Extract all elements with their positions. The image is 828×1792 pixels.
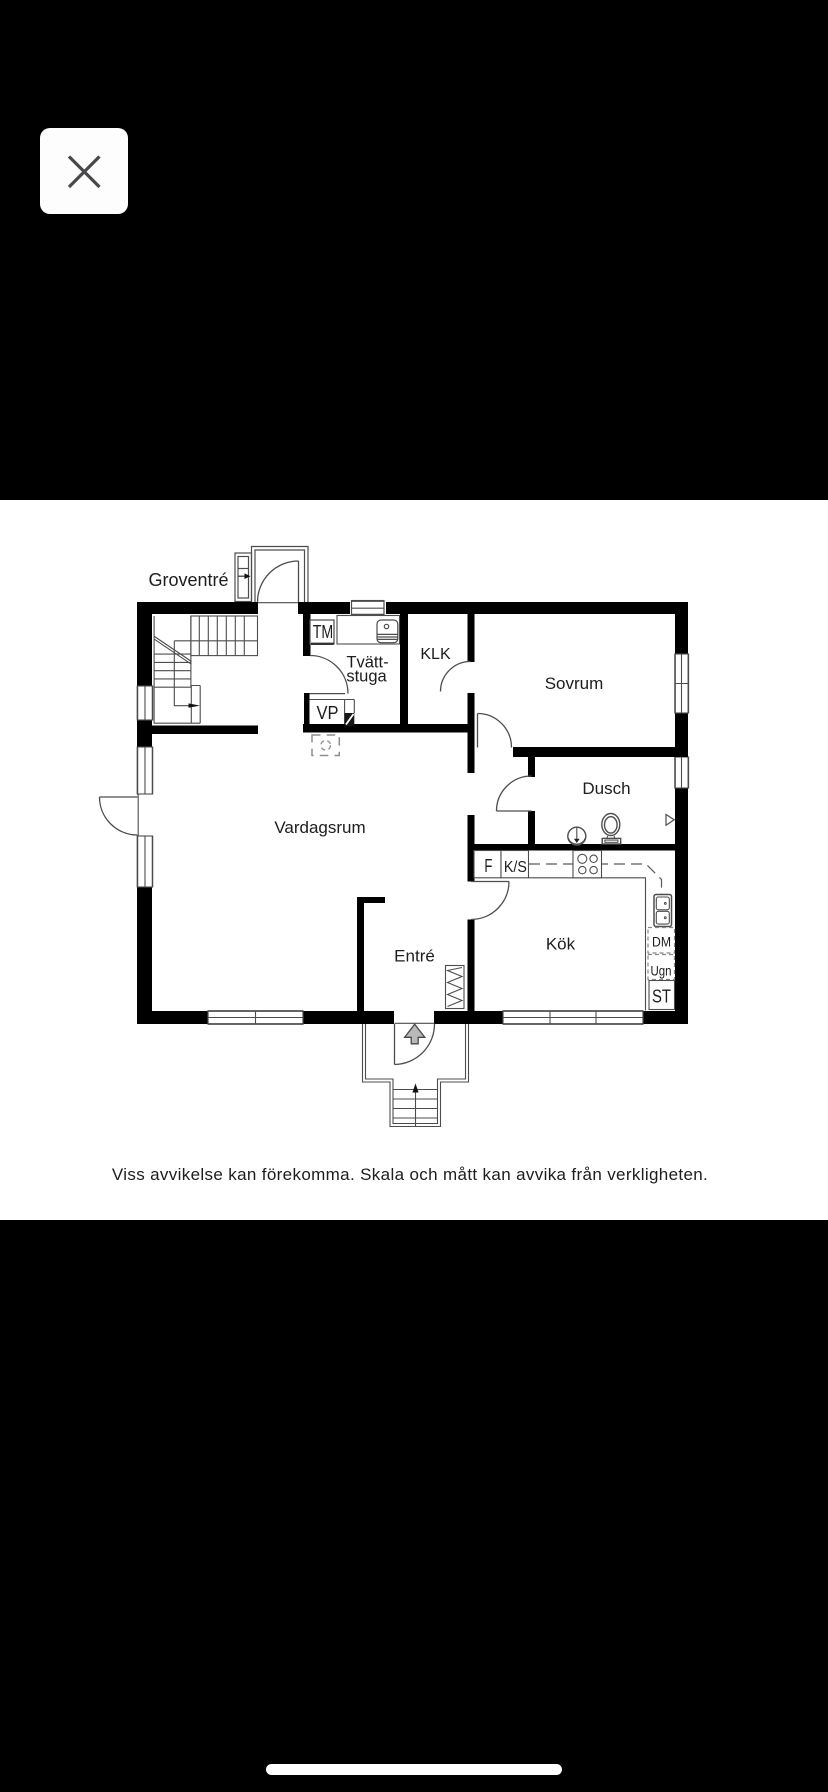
- svg-text:Ugn: Ugn: [651, 963, 672, 979]
- svg-text:stuga: stuga: [346, 668, 387, 686]
- svg-text:Sovrum: Sovrum: [545, 674, 604, 693]
- svg-text:KLK: KLK: [420, 646, 451, 663]
- svg-text:TM: TM: [313, 621, 334, 642]
- svg-text:Kök: Kök: [546, 935, 576, 954]
- svg-text:Dusch: Dusch: [582, 779, 630, 798]
- svg-text:Entré: Entré: [394, 947, 435, 966]
- svg-text:Viss avvikelse kan förekomma.: Viss avvikelse kan förekomma. Skala och …: [112, 1165, 708, 1184]
- svg-text:ST: ST: [652, 986, 671, 1007]
- svg-text:K/S: K/S: [504, 859, 527, 876]
- svg-text:VP: VP: [317, 703, 339, 723]
- svg-text:Groventré: Groventré: [149, 570, 229, 590]
- svg-text:DM: DM: [652, 934, 671, 950]
- svg-text:Vardagsrum: Vardagsrum: [274, 818, 365, 837]
- svg-text:F: F: [484, 856, 492, 876]
